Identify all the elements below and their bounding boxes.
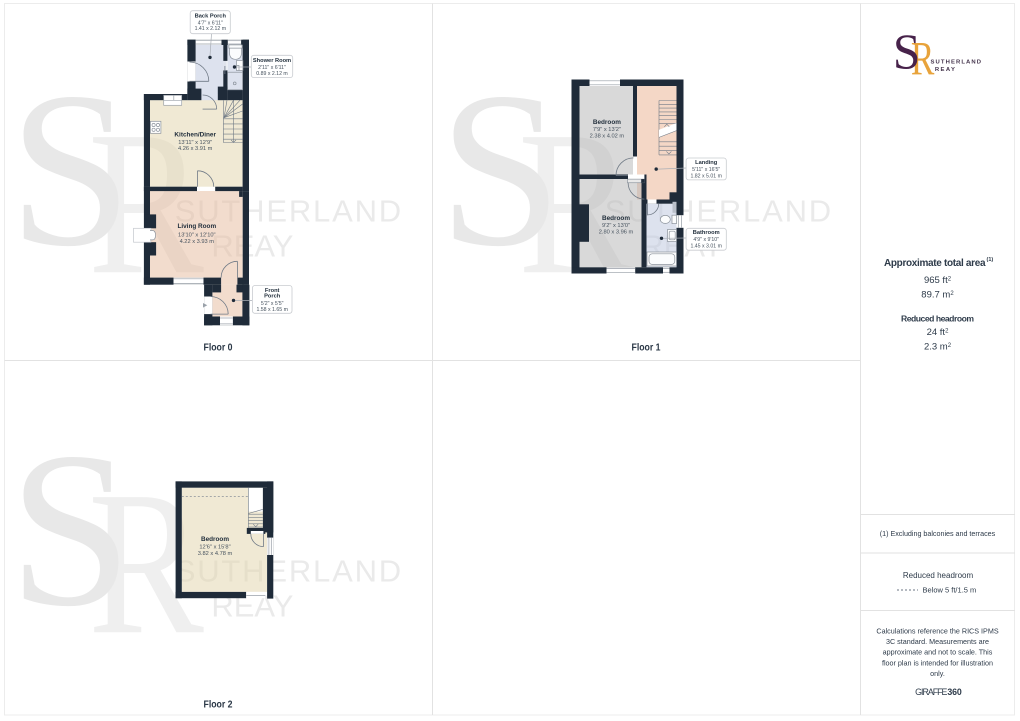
svg-text:Bedroom: Bedroom (602, 215, 630, 222)
svg-text:89.7 m2: 89.7 m2 (921, 290, 954, 301)
svg-text:Floor 0: Floor 0 (204, 343, 233, 354)
svg-text:Landing: Landing (695, 160, 718, 166)
svg-text:5'2" x 5'5": 5'2" x 5'5" (261, 301, 284, 307)
svg-text:REAY: REAY (935, 67, 955, 73)
svg-text:1.41 x 2.12 m: 1.41 x 2.12 m (195, 26, 226, 32)
svg-text:2.38 x 4.02 m: 2.38 x 4.02 m (590, 133, 625, 139)
svg-text:2.80 x 3.96 m: 2.80 x 3.96 m (599, 230, 634, 236)
svg-text:Bedroom: Bedroom (593, 119, 621, 126)
svg-text:1.45 x 3.01 m: 1.45 x 3.01 m (690, 244, 721, 250)
svg-text:(1): (1) (987, 257, 994, 263)
svg-text:Porch: Porch (264, 294, 281, 300)
svg-text:S: S (9, 407, 132, 653)
svg-text:Shower Room: Shower Room (253, 58, 291, 64)
svg-text:approximate and not to scale.: approximate and not to scale. This (883, 648, 993, 657)
svg-text:SUTHERLAND: SUTHERLAND (931, 59, 982, 65)
svg-text:Approximate total area: Approximate total area (884, 258, 986, 269)
svg-text:5'11" x 16'5": 5'11" x 16'5" (692, 167, 720, 173)
svg-text:Below 5 ft/1.5 m: Below 5 ft/1.5 m (923, 586, 977, 595)
svg-text:1.58 x 1.65 m: 1.58 x 1.65 m (256, 307, 287, 313)
svg-text:3.82 x 4.78 m: 3.82 x 4.78 m (198, 551, 233, 557)
svg-text:Calculations reference the RIC: Calculations reference the RICS IPMS (876, 627, 998, 636)
svg-text:7'9" x 13'2": 7'9" x 13'2" (593, 127, 621, 133)
svg-text:965 ft2: 965 ft2 (924, 275, 952, 286)
svg-text:3C standard. Measurements are: 3C standard. Measurements are (886, 637, 989, 646)
svg-text:4.26 x 3.91 m: 4.26 x 3.91 m (178, 146, 213, 152)
svg-text:4.22 x 3.93 m: 4.22 x 3.93 m (180, 239, 215, 245)
svg-text:GIRAFFE: GIRAFFE (915, 687, 947, 697)
svg-text:360: 360 (947, 687, 961, 697)
svg-text:Bedroom: Bedroom (201, 536, 229, 543)
svg-text:0.89 x 2.12 m: 0.89 x 2.12 m (256, 71, 287, 77)
svg-text:Reduced headroom: Reduced headroom (901, 313, 974, 323)
svg-text:Floor 1: Floor 1 (632, 343, 661, 354)
svg-text:only.: only. (930, 669, 945, 678)
svg-text:Kitchen/Diner: Kitchen/Diner (174, 132, 216, 139)
svg-text:Reduced headroom: Reduced headroom (903, 571, 974, 580)
svg-text:12'6" x 15'8": 12'6" x 15'8" (199, 544, 230, 550)
svg-text:13'10" x 12'10": 13'10" x 12'10" (178, 232, 216, 238)
svg-text:9'2" x 13'0": 9'2" x 13'0" (602, 223, 630, 229)
svg-text:Bathroom: Bathroom (693, 230, 720, 236)
svg-text:Back Porch: Back Porch (195, 14, 227, 20)
svg-text:2.3 m2: 2.3 m2 (924, 342, 952, 353)
svg-text:1.82 x 5.01 m: 1.82 x 5.01 m (690, 173, 721, 179)
svg-text:floor plan is intended for ill: floor plan is intended for illustration (882, 658, 993, 667)
svg-text:Floor 2: Floor 2 (204, 699, 233, 710)
svg-text:S: S (439, 47, 562, 293)
svg-text:4'9" x 9'10": 4'9" x 9'10" (693, 237, 719, 243)
svg-text:S: S (893, 24, 921, 79)
svg-text:S: S (9, 47, 132, 293)
svg-text:(1) Excluding balconies and te: (1) Excluding balconies and terraces (880, 529, 996, 538)
svg-text:Living Room: Living Room (177, 223, 216, 230)
